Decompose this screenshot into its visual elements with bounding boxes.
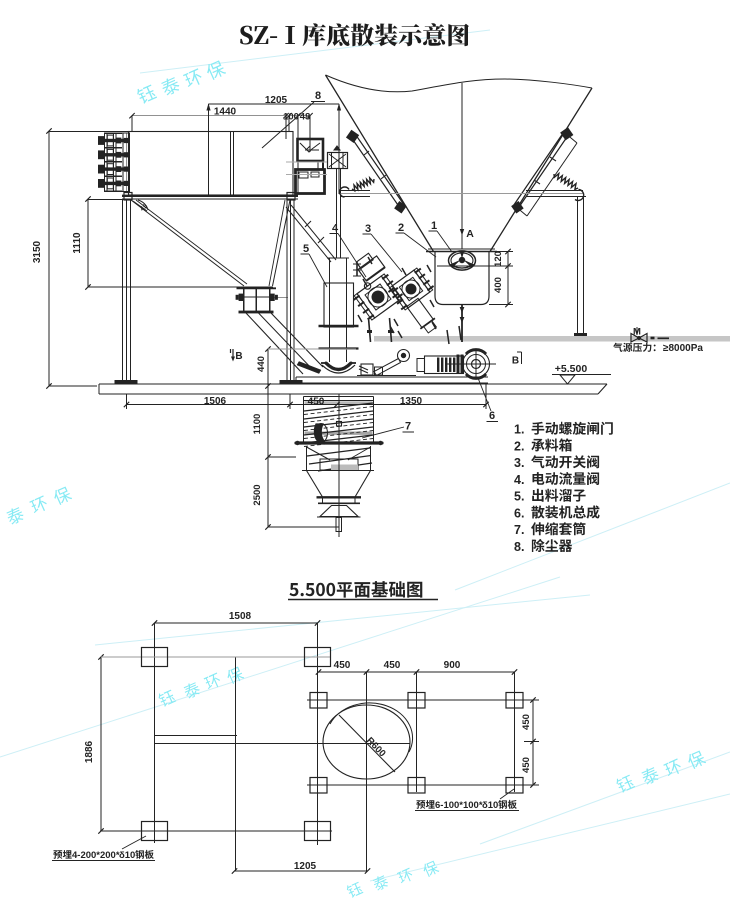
svg-text:120: 120 — [493, 251, 504, 267]
svg-text:δ10: δ10 — [119, 850, 135, 861]
svg-text:3: 3 — [365, 223, 371, 235]
svg-text:1440: 1440 — [214, 107, 237, 118]
svg-text:1508: 1508 — [229, 611, 252, 622]
svg-text:2500: 2500 — [252, 484, 263, 505]
svg-text:6: 6 — [489, 410, 495, 422]
svg-text:7.: 7. — [514, 523, 524, 537]
svg-text:4-200*200*: 4-200*200* — [72, 850, 120, 861]
svg-text:100: 100 — [283, 112, 299, 123]
svg-text:4.: 4. — [514, 473, 524, 487]
svg-text:1.: 1. — [514, 423, 524, 437]
svg-text:B: B — [235, 351, 242, 362]
svg-text:2.: 2. — [514, 439, 524, 453]
svg-text:A: A — [466, 228, 474, 240]
svg-text:7: 7 — [405, 421, 411, 433]
svg-text:450: 450 — [308, 397, 325, 408]
svg-text:≥8000Pa: ≥8000Pa — [663, 343, 703, 354]
svg-text:400: 400 — [493, 277, 504, 293]
svg-text:1100: 1100 — [252, 414, 263, 435]
svg-text:1886: 1886 — [84, 740, 95, 763]
svg-text:4: 4 — [332, 223, 339, 235]
svg-text:1205: 1205 — [265, 95, 288, 106]
svg-text:B: B — [512, 356, 519, 367]
svg-text:δ10: δ10 — [482, 800, 498, 811]
svg-text:48: 48 — [300, 112, 311, 123]
svg-text:6-100*100*: 6-100*100* — [435, 800, 483, 811]
svg-text:1350: 1350 — [400, 396, 423, 407]
svg-text:5.: 5. — [514, 490, 524, 504]
svg-text:2: 2 — [398, 222, 404, 234]
svg-text:440: 440 — [256, 356, 267, 372]
svg-text:8.: 8. — [514, 540, 524, 554]
svg-text:3.: 3. — [514, 456, 524, 470]
svg-text:5: 5 — [303, 243, 309, 255]
svg-text:1506: 1506 — [204, 396, 227, 407]
svg-text:450: 450 — [334, 660, 351, 671]
svg-text:3150: 3150 — [32, 240, 43, 263]
svg-text:8: 8 — [315, 90, 321, 102]
svg-text:900: 900 — [444, 660, 461, 671]
svg-text:450: 450 — [384, 660, 401, 671]
svg-text:450: 450 — [521, 714, 532, 730]
svg-text:6.: 6. — [514, 506, 524, 520]
svg-text:1110: 1110 — [72, 232, 83, 254]
svg-text:1: 1 — [431, 220, 437, 232]
svg-text:450: 450 — [521, 757, 532, 773]
svg-text:+5.500: +5.500 — [555, 363, 588, 375]
svg-text:1205: 1205 — [294, 861, 317, 872]
